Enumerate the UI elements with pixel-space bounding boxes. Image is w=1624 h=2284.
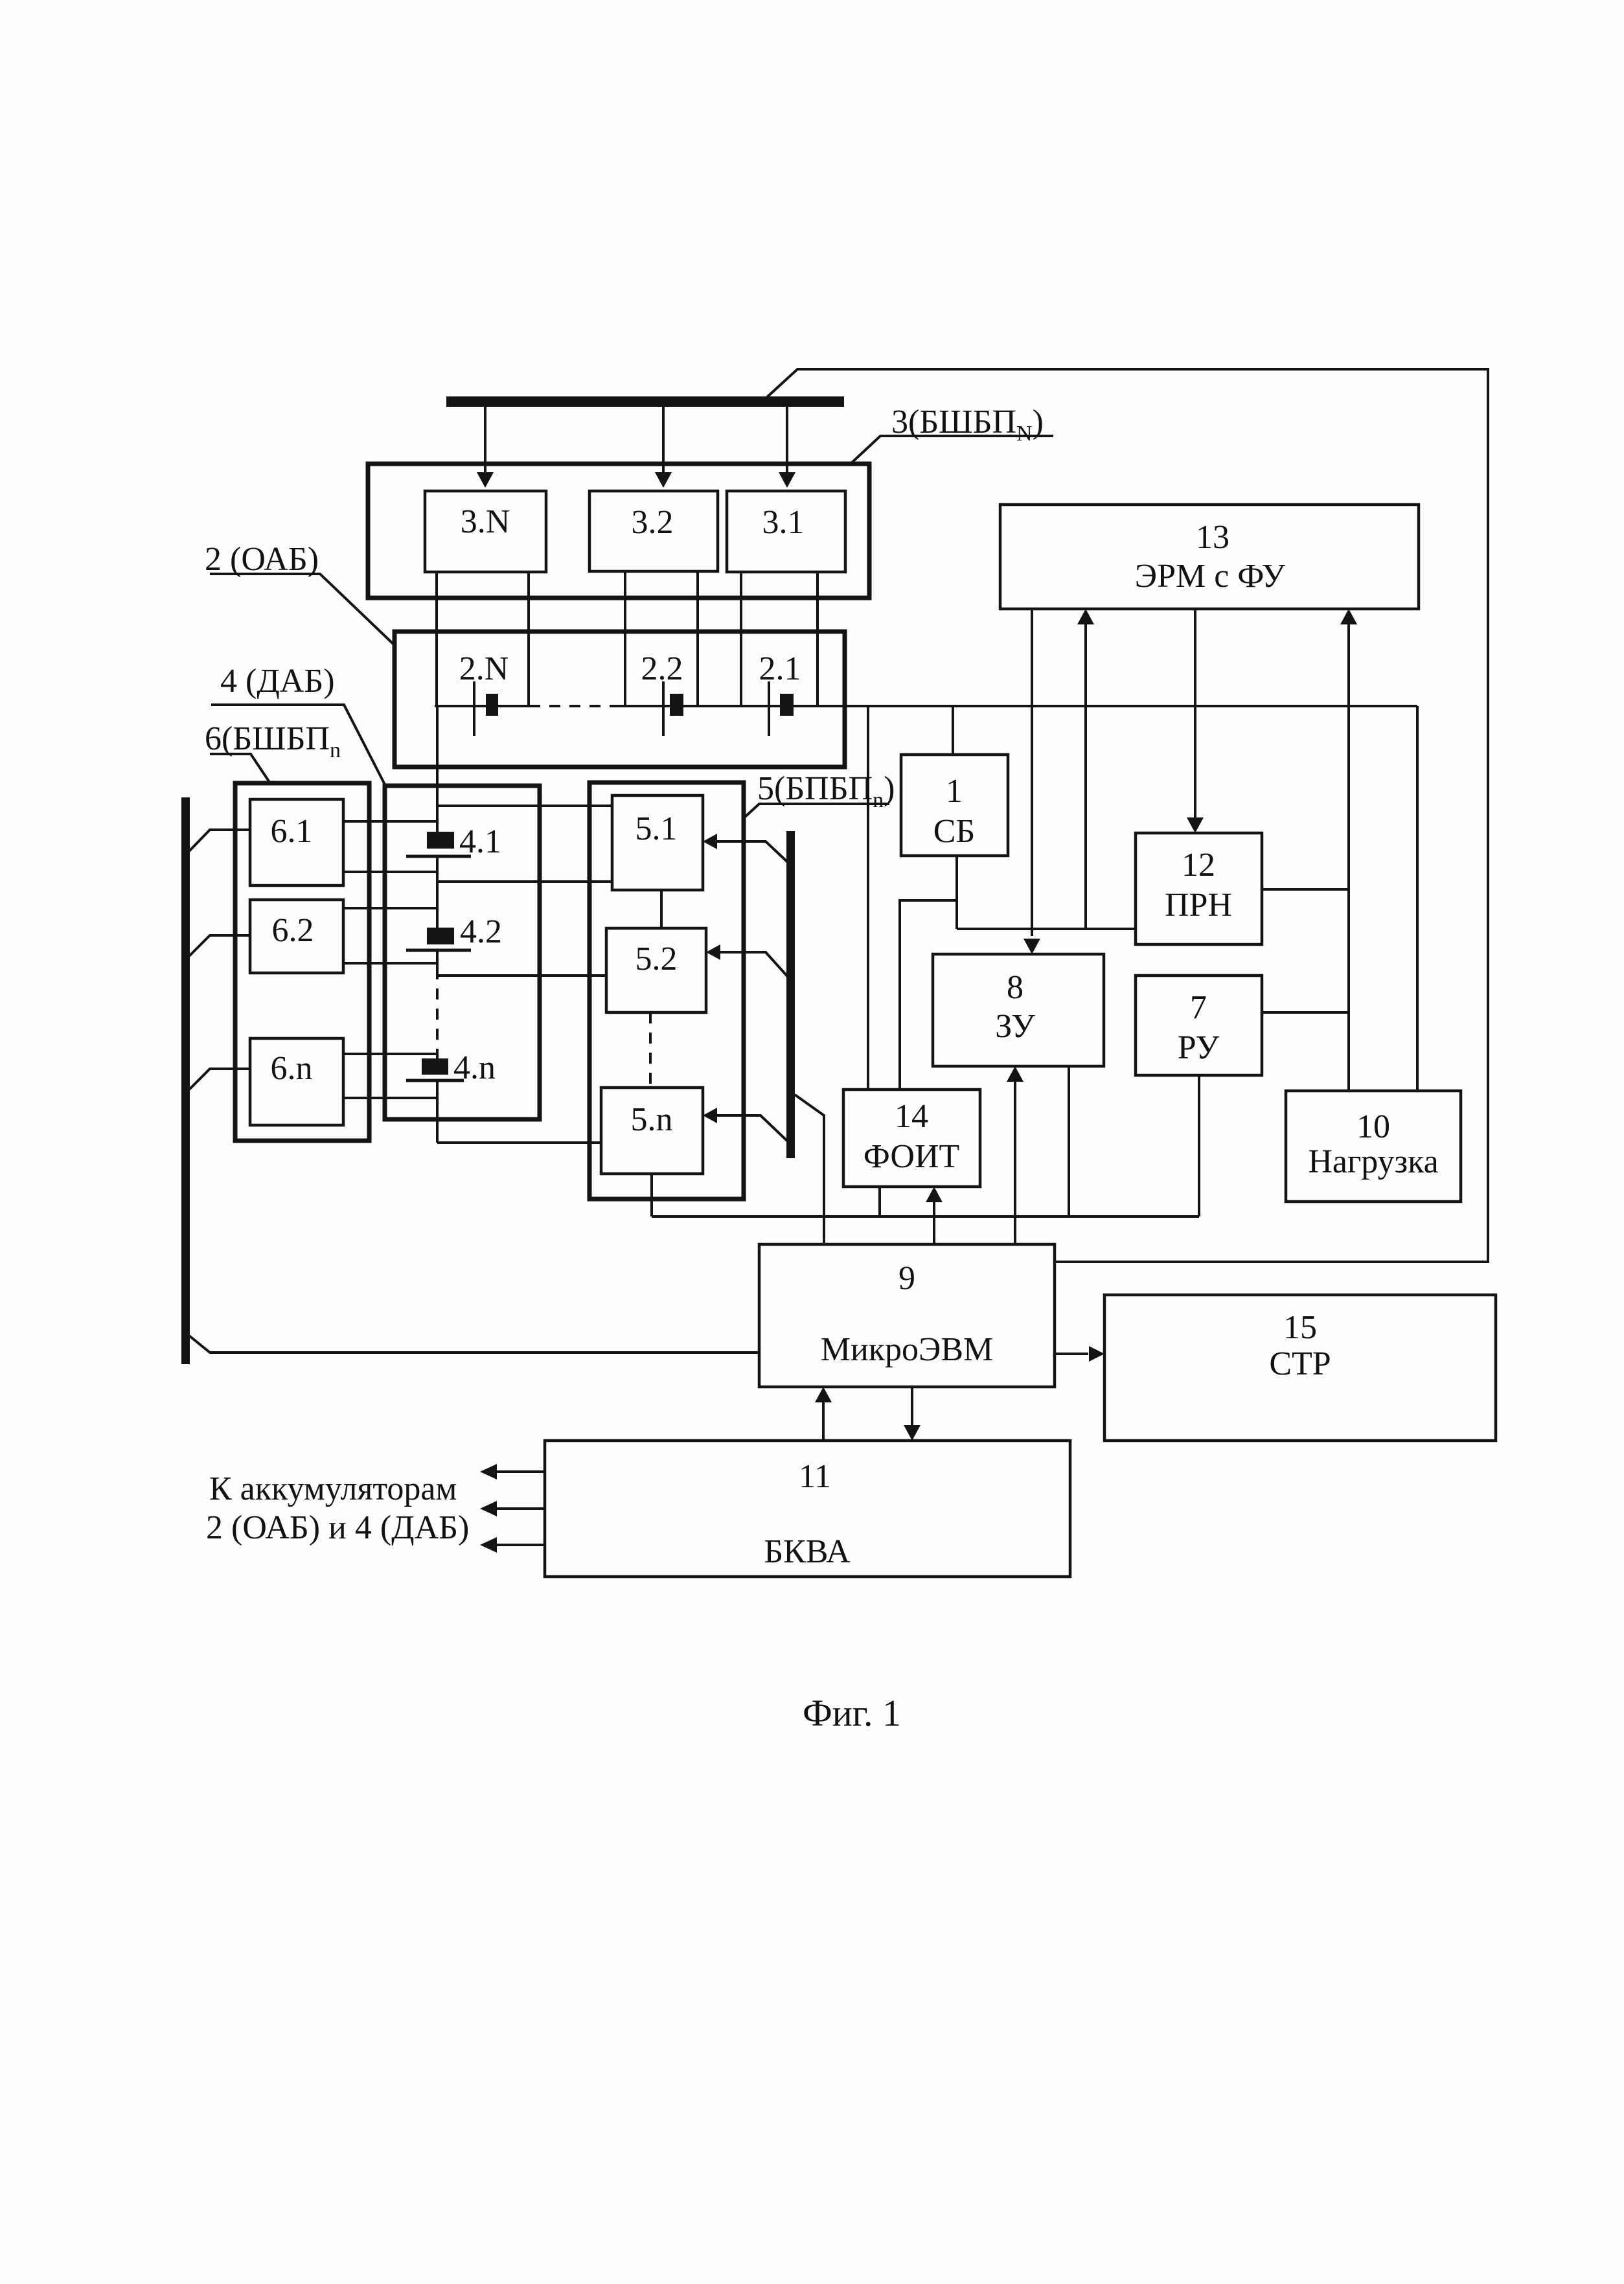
svg-text:4 (ДАБ): 4 (ДАБ) — [220, 663, 335, 700]
svg-text:2 (ОАБ) и 4 (ДАБ): 2 (ОАБ) и 4 (ДАБ) — [206, 1509, 469, 1546]
svg-text:4.2: 4.2 — [460, 913, 502, 950]
svg-text:ЭРМ с ФУ: ЭРМ с ФУ — [1135, 558, 1286, 595]
svg-text:15: 15 — [1283, 1309, 1317, 1346]
svg-text:2.N: 2.N — [459, 650, 509, 687]
svg-text:6(БШБПn: 6(БШБПn — [205, 720, 341, 762]
svg-text:ЗУ: ЗУ — [995, 1008, 1035, 1045]
svg-text:9: 9 — [898, 1260, 915, 1297]
svg-text:РУ: РУ — [1178, 1029, 1220, 1066]
svg-text:10: 10 — [1356, 1108, 1390, 1145]
svg-text:14: 14 — [895, 1098, 928, 1135]
svg-text:5(БПБПn): 5(БПБПn) — [757, 770, 895, 812]
svg-text:5.2: 5.2 — [635, 941, 678, 977]
svg-text:3(БШБПN): 3(БШБПN) — [891, 404, 1044, 446]
svg-text:МикроЭВМ: МикроЭВМ — [821, 1331, 994, 1368]
svg-text:5.1: 5.1 — [635, 810, 678, 847]
svg-text:11: 11 — [799, 1458, 831, 1495]
svg-text:1: 1 — [946, 773, 963, 810]
svg-text:2.1: 2.1 — [759, 650, 801, 687]
svg-text:ПРН: ПРН — [1165, 887, 1232, 924]
svg-text:5.n: 5.n — [631, 1101, 673, 1138]
svg-text:2 (ОАБ): 2 (ОАБ) — [205, 541, 319, 578]
svg-text:7: 7 — [1190, 989, 1207, 1026]
svg-text:ФОИТ: ФОИТ — [863, 1138, 960, 1175]
svg-text:3.N: 3.N — [461, 503, 510, 540]
svg-text:БКВА: БКВА — [764, 1533, 851, 1570]
svg-text:4.1: 4.1 — [459, 823, 501, 860]
svg-text:12: 12 — [1182, 847, 1215, 884]
svg-text:3.1: 3.1 — [762, 504, 805, 541]
svg-text:К аккумуляторам: К аккумуляторам — [209, 1470, 457, 1507]
svg-text:6.n: 6.n — [271, 1050, 313, 1087]
svg-text:СТР: СТР — [1269, 1345, 1331, 1382]
svg-text:8: 8 — [1007, 969, 1024, 1006]
svg-text:СБ: СБ — [933, 813, 976, 850]
svg-text:13: 13 — [1196, 519, 1229, 556]
svg-text:6.2: 6.2 — [272, 912, 314, 949]
svg-text:2.2: 2.2 — [641, 650, 683, 687]
svg-text:Фиг. 1: Фиг. 1 — [803, 1692, 901, 1734]
svg-text:4.n: 4.n — [453, 1049, 496, 1086]
svg-text:6.1: 6.1 — [271, 813, 313, 850]
svg-text:Нагрузка: Нагрузка — [1308, 1143, 1438, 1180]
svg-text:3.2: 3.2 — [632, 504, 674, 541]
